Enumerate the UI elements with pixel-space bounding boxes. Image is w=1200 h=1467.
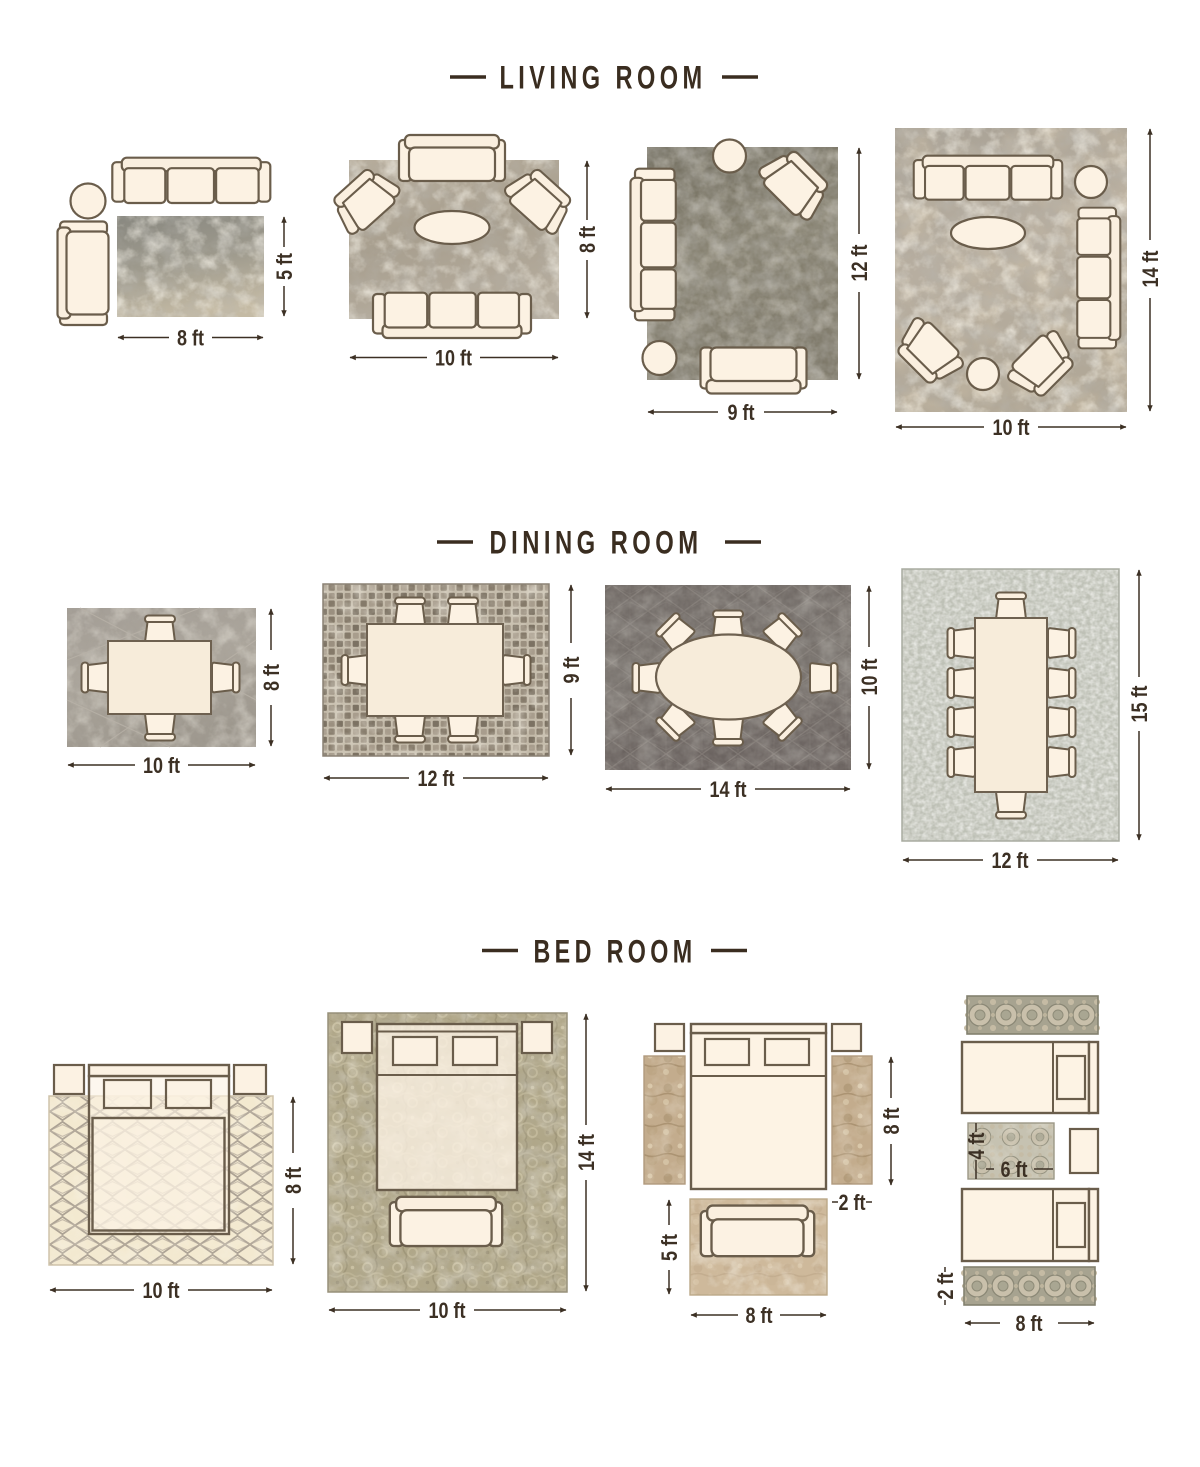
svg-text:8 ft: 8 ft [746,1304,773,1328]
svg-text:4 ft: 4 ft [965,1132,989,1159]
svg-text:2 ft: 2 ft [934,1272,958,1299]
svg-text:2 ft: 2 ft [839,1191,866,1215]
svg-text:8 ft: 8 ft [282,1167,306,1194]
svg-text:8 ft: 8 ft [1016,1312,1043,1336]
svg-text:6 ft: 6 ft [1001,1158,1028,1182]
svg-text:10 ft: 10 ft [143,1279,180,1303]
svg-text:8 ft: 8 ft [880,1107,904,1134]
svg-text:5 ft: 5 ft [658,1234,682,1261]
svg-text:10 ft: 10 ft [429,1299,466,1323]
svg-text:14 ft: 14 ft [575,1134,599,1171]
